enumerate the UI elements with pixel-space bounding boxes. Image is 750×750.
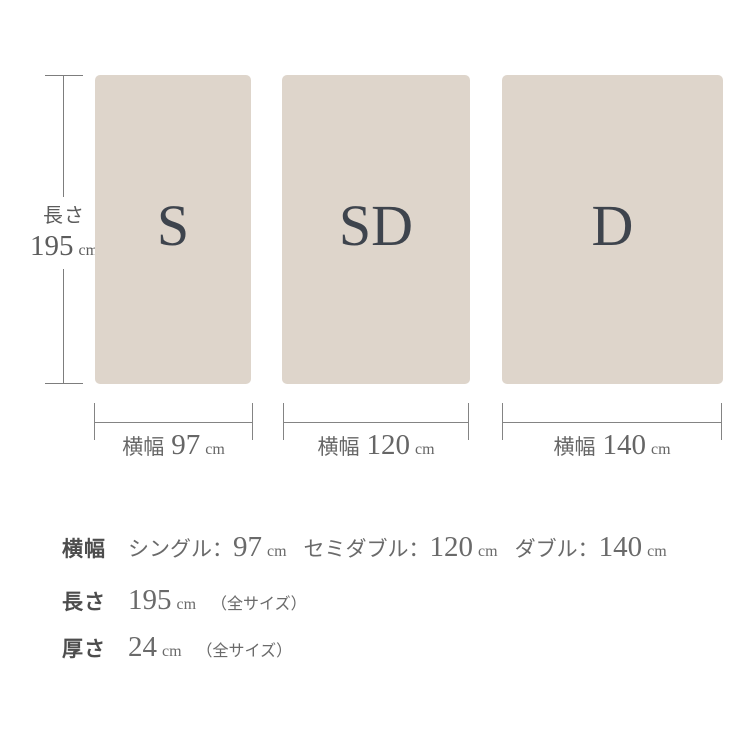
spec-size-name: セミダブル： <box>304 537 430 561</box>
width-measure-double: 横幅140cm <box>502 403 722 465</box>
width-measure-semidouble: 横幅120cm <box>283 403 469 465</box>
mattress-size-diagram: 長さ 195cm S SD D 横幅97cm 横幅120cm <box>0 0 750 750</box>
spec-item-single: シングル：97cm <box>128 543 287 560</box>
width-value-number: 120 <box>366 429 410 461</box>
length-measure: 長さ 195cm <box>45 75 83 384</box>
mattress-single: S <box>95 75 251 384</box>
measure-cap-top <box>45 75 83 76</box>
width-label-text: 横幅 <box>317 435 359 459</box>
spec-item-double: ダブル：140cm <box>515 543 667 560</box>
mattress-semidouble: SD <box>282 75 470 384</box>
width-measure-single: 横幅97cm <box>94 403 253 465</box>
width-measure-label-double: 横幅140cm <box>502 427 722 465</box>
spec-size-value: 120 <box>430 531 474 563</box>
width-label-text: 横幅 <box>553 435 595 459</box>
spec-label-width: 横幅 <box>62 537 106 561</box>
spec-label-thickness: 厚さ <box>62 637 106 661</box>
spec-row-length: 長さ195cm（全サイズ） <box>62 584 307 617</box>
spec-size-name: シングル： <box>128 537 233 561</box>
width-value-unit: cm <box>415 441 435 458</box>
width-value-number: 97 <box>171 429 200 461</box>
spec-row-width: 横幅シングル：97cmセミダブル：120cmダブル：140cm <box>62 531 684 564</box>
spec-length-note: （全サイズ） <box>211 596 307 613</box>
width-value-unit: cm <box>651 441 671 458</box>
spec-size-unit: cm <box>478 543 498 560</box>
spec-length-unit: cm <box>177 596 197 613</box>
spec-label-length: 長さ <box>62 590 106 614</box>
size-code-single: S <box>157 197 189 255</box>
length-value-number: 195 <box>30 230 74 262</box>
spec-size-value: 140 <box>599 531 643 563</box>
spec-length-value: 195 <box>128 584 172 616</box>
width-measure-label-single: 横幅97cm <box>94 427 253 465</box>
size-code-semidouble: SD <box>339 197 413 255</box>
spec-size-value: 97 <box>233 531 262 563</box>
width-value-number: 140 <box>602 429 646 461</box>
spec-row-thickness: 厚さ24cm（全サイズ） <box>62 631 292 664</box>
spec-item-semidouble: セミダブル：120cm <box>304 543 498 560</box>
spec-thickness-unit: cm <box>162 643 182 660</box>
width-label-text: 横幅 <box>122 435 164 459</box>
measure-line-horizontal <box>502 422 722 423</box>
measure-line-horizontal <box>283 422 469 423</box>
size-code-double: D <box>592 197 634 255</box>
spec-size-unit: cm <box>267 543 287 560</box>
mattress-double: D <box>502 75 723 384</box>
width-value-unit: cm <box>205 441 225 458</box>
measure-line-horizontal <box>94 422 253 423</box>
measure-cap-bottom <box>45 383 83 384</box>
spec-thickness-value: 24 <box>128 631 157 663</box>
spec-thickness-note: （全サイズ） <box>197 643 293 660</box>
spec-size-name: ダブル： <box>515 537 599 561</box>
width-measure-label-semidouble: 横幅120cm <box>283 427 469 465</box>
spec-size-unit: cm <box>647 543 667 560</box>
